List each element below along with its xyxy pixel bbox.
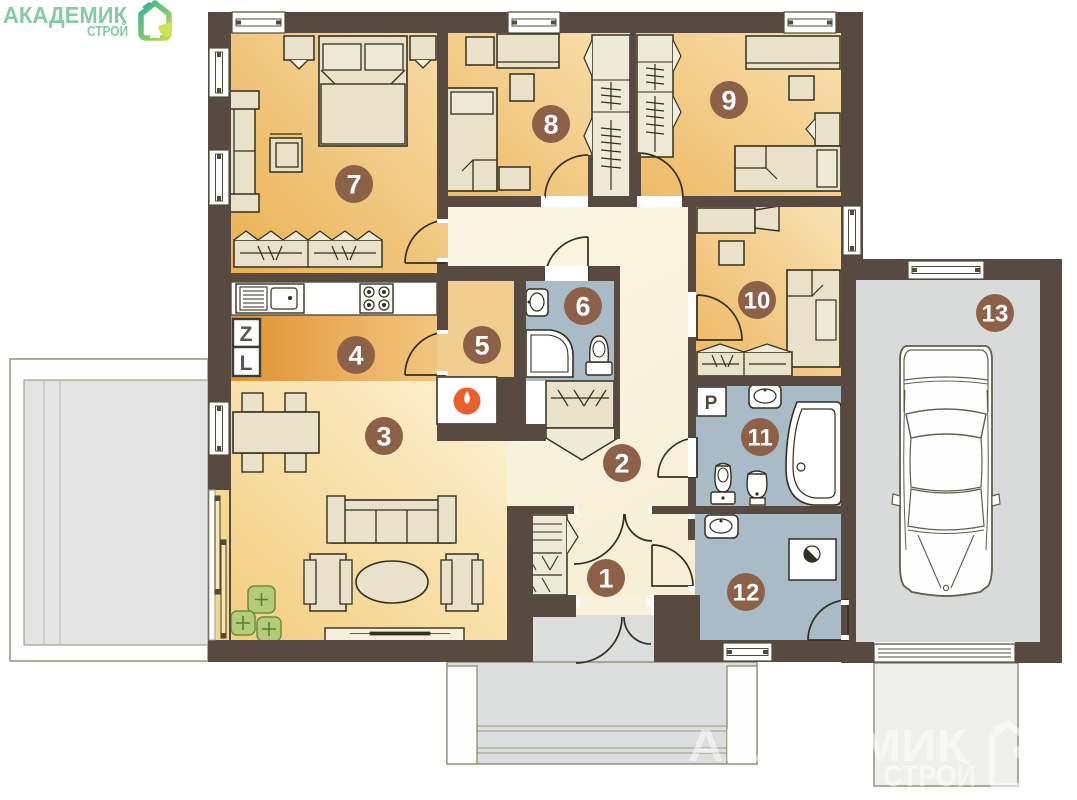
svg-text:СТРОЙ: СТРОЙ xyxy=(883,759,976,793)
svg-text:13: 13 xyxy=(982,300,1009,327)
svg-text:L: L xyxy=(240,352,253,375)
svg-text:3: 3 xyxy=(376,421,391,451)
svg-text:8: 8 xyxy=(543,109,558,139)
svg-text:1: 1 xyxy=(598,563,613,593)
svg-text:4: 4 xyxy=(348,340,363,370)
svg-text:2: 2 xyxy=(614,448,629,478)
svg-text:P: P xyxy=(705,393,718,414)
svg-text:5: 5 xyxy=(474,330,489,360)
svg-text:Z: Z xyxy=(240,323,253,346)
svg-text:6: 6 xyxy=(575,291,590,321)
svg-text:12: 12 xyxy=(733,579,760,606)
svg-text:10: 10 xyxy=(744,287,771,314)
svg-text:СТРОЙ: СТРОЙ xyxy=(87,22,128,40)
svg-text:7: 7 xyxy=(346,169,361,199)
svg-text:9: 9 xyxy=(721,85,736,115)
svg-text:11: 11 xyxy=(747,424,772,451)
